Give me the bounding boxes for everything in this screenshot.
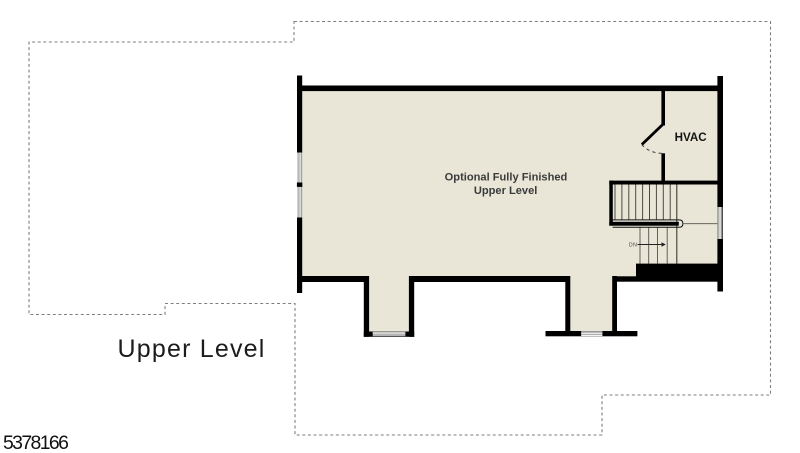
svg-text:5378166: 5378166 (3, 432, 68, 453)
svg-text:Upper Level: Upper Level (474, 185, 538, 197)
svg-text:Upper Level: Upper Level (118, 335, 266, 363)
svg-text:DN: DN (629, 243, 637, 249)
svg-text:HVAC: HVAC (675, 131, 708, 144)
svg-text:Optional Fully Finished: Optional Fully Finished (445, 171, 568, 183)
